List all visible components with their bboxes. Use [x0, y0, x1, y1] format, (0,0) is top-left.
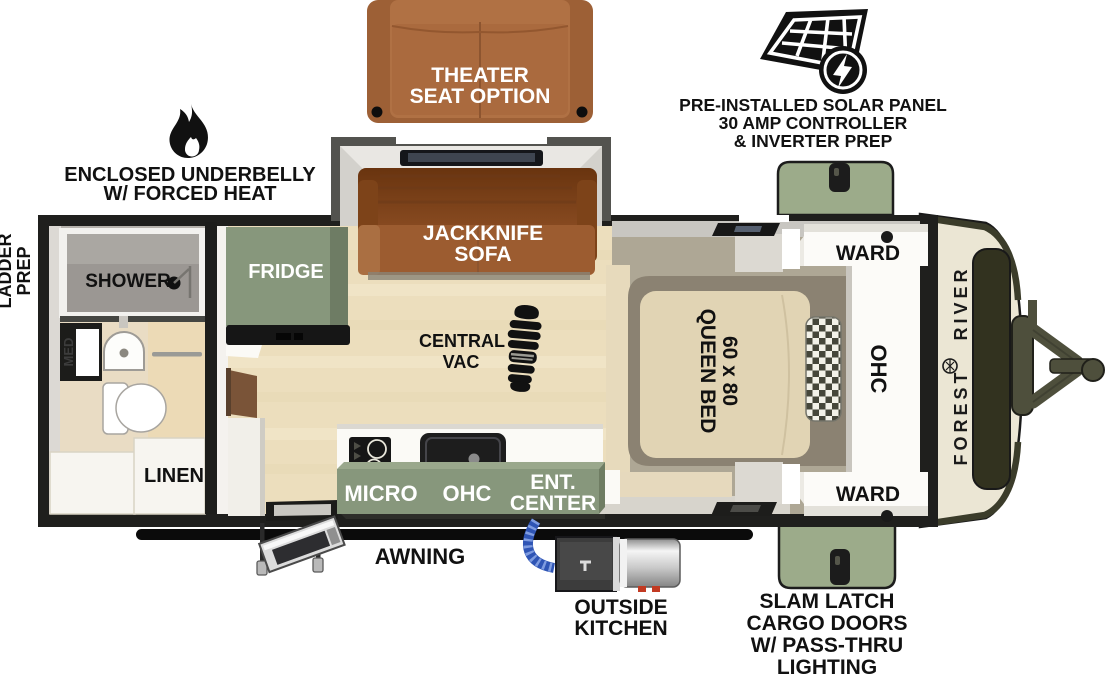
svg-text:60 x 80: 60 x 80	[718, 336, 741, 406]
svg-text:SHOWER: SHOWER	[85, 271, 171, 292]
svg-text:SOFA: SOFA	[454, 243, 511, 266]
svg-text:WARD: WARD	[836, 242, 900, 265]
svg-text:FRIDGE: FRIDGE	[248, 261, 324, 283]
svg-text:WARD: WARD	[836, 483, 900, 506]
svg-text:MED: MED	[61, 338, 76, 367]
svg-text:RIVER: RIVER	[951, 265, 971, 340]
svg-text:OHC: OHC	[866, 345, 891, 394]
svg-text:30 AMP CONTROLLER: 30 AMP CONTROLLER	[719, 113, 908, 133]
svg-text:THEATER: THEATER	[431, 64, 529, 87]
svg-text:CENTRAL: CENTRAL	[419, 331, 505, 351]
svg-text:AWNING: AWNING	[375, 544, 465, 569]
svg-text:CARGO DOORS: CARGO DOORS	[746, 612, 907, 635]
svg-text:LIGHTING: LIGHTING	[777, 656, 877, 675]
svg-text:SEAT OPTION: SEAT OPTION	[410, 85, 551, 108]
svg-text:VAC: VAC	[443, 352, 480, 372]
svg-text:JACKKNIFE: JACKKNIFE	[423, 222, 543, 245]
svg-text:FOREST: FOREST	[951, 368, 971, 465]
svg-text:PRE-INSTALLED SOLAR PANEL: PRE-INSTALLED SOLAR PANEL	[679, 95, 947, 115]
svg-text:CENTER: CENTER	[510, 492, 596, 515]
svg-text:W/ PASS-THRU: W/ PASS-THRU	[751, 634, 903, 657]
svg-text:LINEN: LINEN	[144, 465, 204, 487]
svg-text:ENT.: ENT.	[530, 471, 576, 494]
svg-text:SLAM LATCH: SLAM LATCH	[760, 590, 895, 613]
svg-text:OHC: OHC	[443, 481, 492, 506]
svg-text:W/ FORCED HEAT: W/ FORCED HEAT	[104, 183, 277, 205]
svg-text:QUEEN BED: QUEEN BED	[696, 309, 719, 434]
svg-text:PREP: PREP	[14, 246, 34, 295]
svg-text:& INVERTER PREP: & INVERTER PREP	[734, 131, 893, 151]
svg-text:MICRO: MICRO	[344, 481, 417, 506]
svg-text:LADDER: LADDER	[0, 234, 15, 309]
svg-text:KITCHEN: KITCHEN	[574, 617, 667, 640]
svg-text:OUTSIDE: OUTSIDE	[574, 596, 667, 619]
